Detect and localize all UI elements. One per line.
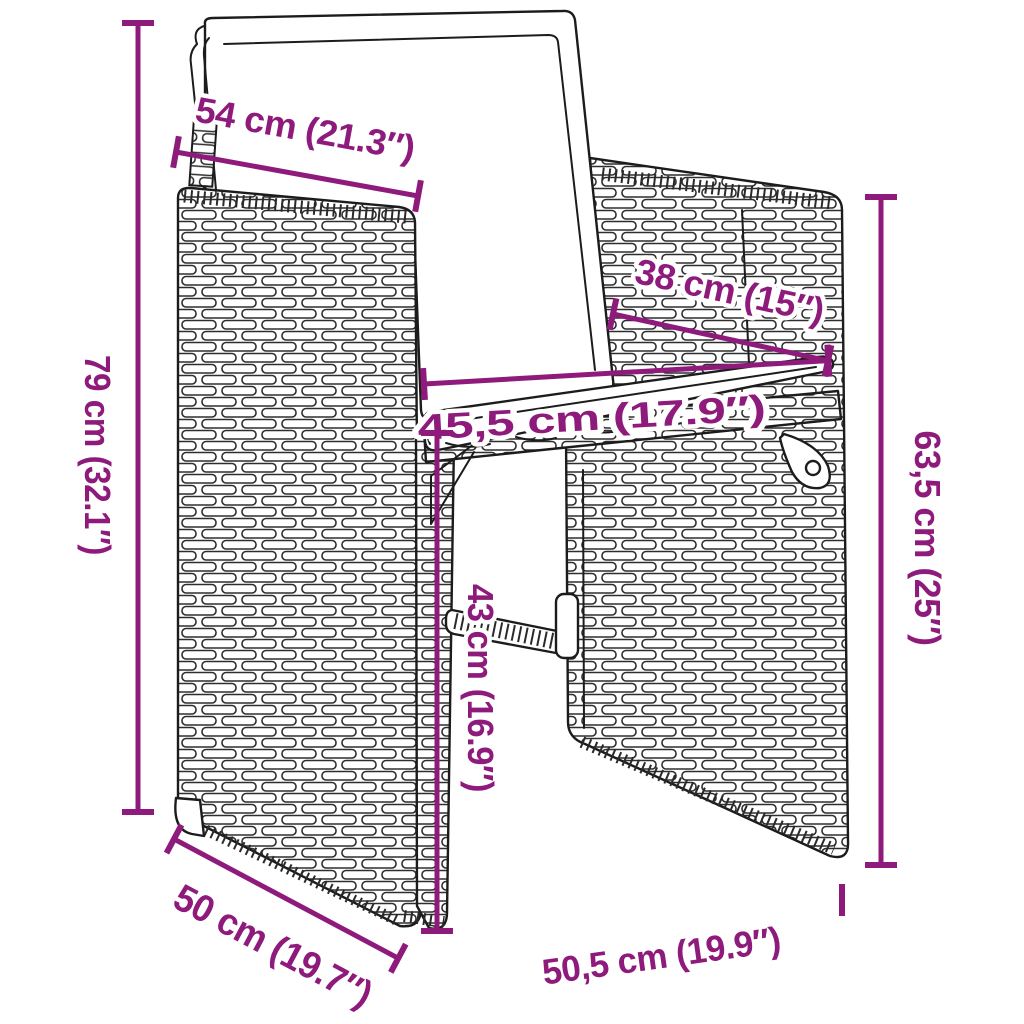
right-panel bbox=[566, 158, 848, 857]
dimension-total-height: 79 cm (32.1″) bbox=[77, 23, 154, 812]
dimension-total-width: 50,5 cm (19.9″) bbox=[540, 884, 842, 993]
chair-diagram-svg: 54 cm (21.3″) 38 cm (15″) 45,5 cm (17.9″… bbox=[0, 0, 1024, 1024]
rear-right-leg-line bbox=[583, 470, 584, 728]
product-dimension-diagram: 54 cm (21.3″) 38 cm (15″) 45,5 cm (17.9″… bbox=[0, 0, 1024, 1024]
dim-label-total-height: 79 cm (32.1″) bbox=[77, 355, 118, 555]
dim-label-backrest-height: 63,5 cm (25″) bbox=[907, 431, 948, 646]
dim-label-total-width: 50,5 cm (19.9″) bbox=[540, 919, 783, 993]
chair-illustration bbox=[175, 11, 848, 929]
dim-label-seat-height: 43 cm (16.9″) bbox=[460, 584, 501, 792]
dimension-backrest-height: 63,5 cm (25″) bbox=[865, 197, 948, 865]
left-panel bbox=[178, 188, 421, 926]
